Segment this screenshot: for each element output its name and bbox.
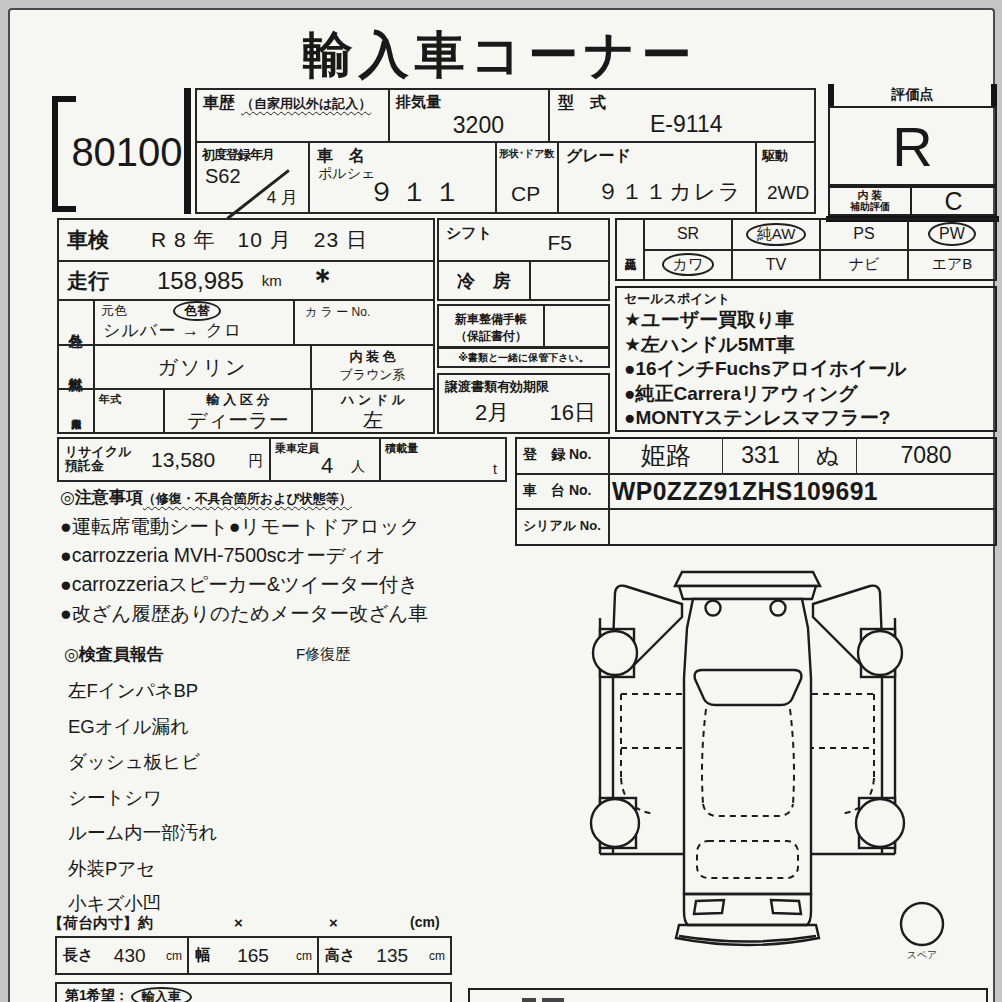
fuel-label: 燃料 [59, 346, 95, 388]
first-registration-month: 4 月 [267, 186, 298, 209]
history-label: 車歴 [203, 93, 235, 114]
cargo-x1: × [234, 914, 243, 931]
documents-note: ※書類と一緒に保管下さい。 [437, 347, 610, 368]
sales-point-item: ●16インチFuchsアロイホイール [624, 357, 995, 382]
first-registration-year: S62 [205, 165, 241, 188]
body-shape-label: 形状･ドア数 [499, 147, 554, 161]
first-choice-label: 第1希望： [65, 987, 129, 1002]
bottom-right-clipped-box [468, 988, 988, 1002]
displacement-value: 3200 [453, 112, 504, 139]
headlight-right [771, 900, 801, 914]
exterior-color-value: シルバー → クロ [103, 319, 242, 342]
body-shape-value: CP [511, 182, 540, 206]
equipment-pw: PW [928, 222, 976, 246]
cargo-width-value: 165 [237, 945, 269, 967]
equipment-navi: ナビ [849, 255, 880, 274]
divider-bar [184, 88, 191, 214]
drive-value: 2WD [767, 182, 809, 204]
interior-color-value: ブラウン系 [312, 366, 433, 384]
cargo-height-value: 135 [376, 945, 408, 967]
interior-rating-box: 内 装 補助評価 C [828, 186, 997, 216]
import-class-value: ディーラー [165, 407, 311, 434]
transfer-deadline-box: 譲渡書類有効期限 2月 16日 [437, 373, 610, 434]
displacement-box: 排気量 3200 [388, 88, 550, 143]
mileage-value: 158,985 [109, 267, 244, 295]
service-book-box: 新車整備手帳 （保証書付） [437, 304, 610, 348]
fuel-row: 燃料 ガソリン 内 装 色 ブラウン系 [57, 344, 435, 390]
inspection-label: 車検 [59, 226, 109, 254]
caution-item: ●改ざん履歴ありのためメーター改ざん車 [60, 599, 510, 628]
wheel-left-front [591, 799, 639, 847]
rating-value: R [892, 114, 932, 179]
rating-header: 評価点 [828, 84, 997, 106]
rear-wing [675, 572, 820, 586]
registration-kana: ぬ [799, 439, 857, 473]
first-registration-label: 初度登録年月 [202, 146, 274, 164]
oem-equipment-table: 純正品 SR 純AW PS PW カワ TV ナビ エアB [615, 218, 997, 281]
recycle-unit: 円 [248, 452, 263, 471]
transfer-deadline-label: 譲渡書類有効期限 [445, 378, 549, 396]
caution-item: ●carrozzeriaスピーカー&ツイーター付き [60, 570, 510, 599]
load-label: 積載量 [385, 441, 418, 456]
fuel-value: ガソリン [95, 346, 312, 388]
chassis-no-value: WP0ZZZ91ZHS109691 [610, 476, 878, 507]
cautions-label: ◎注意事項 [60, 488, 143, 507]
inspector-item: 左FインパネBP [68, 673, 494, 709]
history-box: 車歴 （自家用以外は記入） [195, 88, 390, 143]
mileage-asterisk-mark: ＊ [282, 260, 338, 301]
cargo-x2: × [329, 914, 338, 931]
cautions-section: ◎注意事項（修復・不具合箇所および状態等） ●運転席電動シート●リモートドアロッ… [60, 486, 510, 628]
first-choice-box: 第1希望： 輸入車 [55, 982, 452, 1002]
equipment-sr: SR [677, 225, 699, 243]
equipment-tv: TV [766, 256, 786, 274]
registration-box: 登 録 No. 姫路 331 ぬ 7080 車 台 No. WP0ZZZ91ZH… [515, 437, 997, 546]
chassis-no-label: 車 台 No. [517, 475, 610, 509]
inspection-row: 車検 R 8 年 10 月 23 日 [57, 218, 435, 262]
inspector-item: 外装Pアセ [68, 851, 494, 887]
wheel-right-front [856, 799, 904, 847]
cargo-length-unit: cm [166, 949, 187, 963]
sales-point-item: ●MONTYステンレスマフラー? [624, 406, 995, 431]
transfer-deadline-month: 2月 [475, 398, 509, 428]
import-use-label: 輸入車用 [59, 390, 95, 432]
serial-no-label: シリアル No. [517, 510, 610, 544]
cargo-label: 【荷台内寸】約 [48, 914, 153, 933]
cargo-width-unit: cm [296, 949, 317, 963]
mileage-row: 走行 158,985 km ＊ [57, 260, 435, 301]
interior-label-line2: 補助評価 [830, 201, 910, 212]
grade-label: グレード [566, 146, 631, 167]
history-note: （自家用以外は記入） [241, 95, 371, 113]
handle-value: 左 [313, 407, 433, 434]
registration-class: 331 [723, 439, 799, 473]
inspector-section: ◎検査員報告 F修復歴 左FインパネBP EGオイル漏れ ダッシュ板ヒビ シート… [64, 643, 494, 922]
cargo-height-unit: cm [429, 949, 450, 963]
rating-label: 評価点 [834, 84, 991, 104]
inspector-item: ダッシュ板ヒビ [68, 744, 494, 780]
inspector-item: シートシワ [68, 780, 494, 816]
equipment-oem-alloy: 純AW [746, 223, 807, 246]
interior-color-label: 内 装 色 [312, 348, 433, 366]
transfer-deadline-day: 16日 [550, 398, 596, 428]
caution-item: ●運転席電動シート●リモートドアロック [60, 512, 510, 541]
cargo-header: 【荷台内寸】約 × × (cm) [48, 914, 468, 934]
load-unit: t [493, 461, 497, 477]
aircon-label: 冷 房 [439, 262, 531, 299]
car-top-view-diagram: スペア [575, 556, 1000, 985]
equipment-leather: カワ [662, 253, 715, 276]
interior-label-line1: 内 装 [830, 189, 910, 201]
capacity-value: 4 [321, 453, 333, 479]
wheel-left-rear [593, 631, 637, 675]
inspector-label: ◎検査員報告 [64, 645, 164, 664]
cargo-height-label: 高さ [319, 946, 355, 965]
caution-item: ●carrozzeria MVH-7500scオーディオ [60, 541, 510, 570]
grade-value: ９１１カレラ [597, 177, 743, 207]
shift-box: シフト F5 [437, 218, 610, 262]
page-title: 輸入車コーナー [250, 22, 750, 89]
original-color-label: 元色 [101, 302, 127, 320]
car-name-label: 車 名 [317, 146, 365, 167]
oem-equipment-label: 純正品 [617, 220, 645, 279]
car-name-box: 車 名 ポルシェ ９１１ [308, 141, 497, 214]
cargo-table: 長さ 430 cm 幅 165 cm 高さ 135 cm [55, 936, 452, 975]
model-code-box: 型 式 E-9114 [548, 88, 816, 143]
service-book-label-line2: （保証書付） [439, 328, 543, 345]
aircon-box: 冷 房 [437, 260, 610, 301]
sales-point-item: ★左ハンドル5MT車 [624, 333, 995, 358]
import-row: 輸入車用 年式 輸 入 区 分 ディーラー ハ ン ド ル 左 [57, 388, 435, 434]
inspector-item: EGオイル漏れ [68, 709, 494, 745]
mileage-label: 走行 [59, 267, 109, 295]
displacement-label: 排気量 [396, 93, 441, 112]
first-registration-box: 初度登録年月 S62 4 月 [195, 141, 310, 214]
inspection-value: R 8 年 10 月 23 日 [109, 226, 368, 254]
model-code-value: E-9114 [650, 111, 722, 138]
registration-no-label: 登 録 No. [517, 439, 610, 473]
equipment-ps: PS [853, 225, 874, 243]
aircon-value [531, 262, 608, 299]
recycle-row: リサイクル 預託金 13,580 円 乗車定員 4 人 積載量 t [57, 437, 507, 482]
car-model: ９１１ [368, 174, 467, 210]
cargo-length-value: 430 [114, 945, 146, 967]
capacity-label: 乗車定員 [275, 441, 319, 456]
wheel-right-rear [858, 631, 902, 675]
spare-wheel-label: スペア [907, 949, 938, 960]
cargo-width-label: 幅 [189, 946, 210, 965]
sales-points-label: セールスポイント [617, 288, 995, 308]
shift-value: F5 [547, 231, 572, 255]
registration-area: 姫路 [610, 439, 723, 473]
mileage-unit: km [244, 272, 282, 289]
rating-grade-box: R [828, 106, 997, 186]
color-no-label: カ ラ ー No. [305, 304, 370, 321]
model-code-label: 型 式 [558, 93, 606, 114]
exterior-color-row: 外色 元色 色替 シルバー → クロ カ ラ ー No. [57, 299, 435, 346]
auction-sheet-page: 輸入車コーナー 80100 車歴 （自家用以外は記入） 排気量 3200 型 式… [0, 0, 1002, 1002]
car-maker: ポルシェ [318, 165, 375, 183]
cargo-length-label: 長さ [57, 946, 93, 965]
interior-rating-value: C [944, 187, 962, 216]
spare-wheel [901, 903, 943, 945]
lot-number: 80100 [68, 130, 186, 175]
model-year-label: 年式 [99, 392, 121, 407]
capacity-unit: 人 [351, 458, 365, 476]
inspector-item: ルーム内一部汚れ [68, 815, 494, 851]
grade-box: グレード ９１１カレラ [557, 141, 757, 214]
sales-point-item: ★ユーザー買取り車 [624, 308, 995, 333]
service-book-value [545, 306, 608, 346]
sales-point-item: ●純正Carreraリアウィング [624, 382, 995, 407]
recycle-value: 13,580 [151, 448, 215, 472]
first-choice-value: 輸入車 [131, 987, 192, 1002]
equipment-airbag: エアB [932, 255, 973, 274]
exterior-color-label: 外色 [59, 301, 95, 344]
sales-points-box: セールスポイント ★ユーザー買取り車 ★左ハンドル5MT車 ●16インチFuch… [615, 286, 997, 432]
registration-number: 7080 [857, 439, 995, 473]
drive-box: 駆動 2WD [755, 141, 816, 214]
service-book-label-line1: 新車整備手帳 [439, 311, 543, 328]
repair-history-label: F修復歴 [296, 645, 350, 664]
headlight-left [694, 900, 724, 914]
shift-label: シフト [446, 224, 492, 243]
cargo-unit: (cm) [410, 914, 440, 930]
body-shape-box: 形状･ドア数 CP [495, 141, 559, 214]
front-bumper [684, 894, 811, 925]
cautions-note: （修復・不具合箇所および状態等） [143, 491, 352, 506]
drive-label: 駆動 [762, 147, 788, 165]
